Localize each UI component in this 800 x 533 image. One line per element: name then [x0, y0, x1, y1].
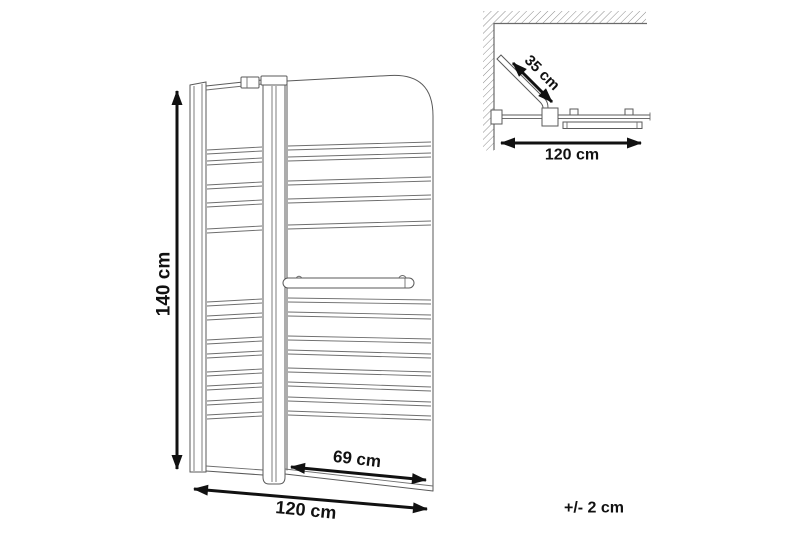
top-clamp	[241, 77, 259, 88]
door-width-dimension-arrow	[291, 467, 426, 480]
top-view: 35 cm 120 cm	[483, 11, 650, 164]
wall-line	[494, 24, 647, 151]
towel-bar-top-view	[563, 122, 642, 129]
hinge-block	[542, 108, 558, 126]
top-view-width-label: 120 cm	[545, 147, 599, 164]
height-dimension-label: 140 cm	[154, 252, 175, 316]
swing-dimension-label: 35 cm	[521, 52, 563, 94]
dimension-drawing: 140 cm 69 cm 120 cm	[0, 0, 800, 533]
hinge-profile	[261, 76, 287, 484]
wall-bracket	[491, 110, 502, 124]
front-view: 140 cm 69 cm 120 cm	[154, 75, 434, 523]
fixed-panel-stripes	[207, 147, 262, 419]
towel-bar	[283, 276, 414, 289]
fixed-panel	[206, 80, 263, 475]
wall-profile	[190, 82, 206, 472]
wall-hatching	[483, 11, 646, 151]
tolerance-label: +/- 2 cm	[564, 500, 624, 517]
diagram-canvas: 140 cm 69 cm 120 cm	[0, 0, 800, 533]
door-panel	[283, 75, 433, 491]
door-width-dimension-label: 69 cm	[332, 447, 382, 471]
rail-clips	[570, 109, 633, 115]
